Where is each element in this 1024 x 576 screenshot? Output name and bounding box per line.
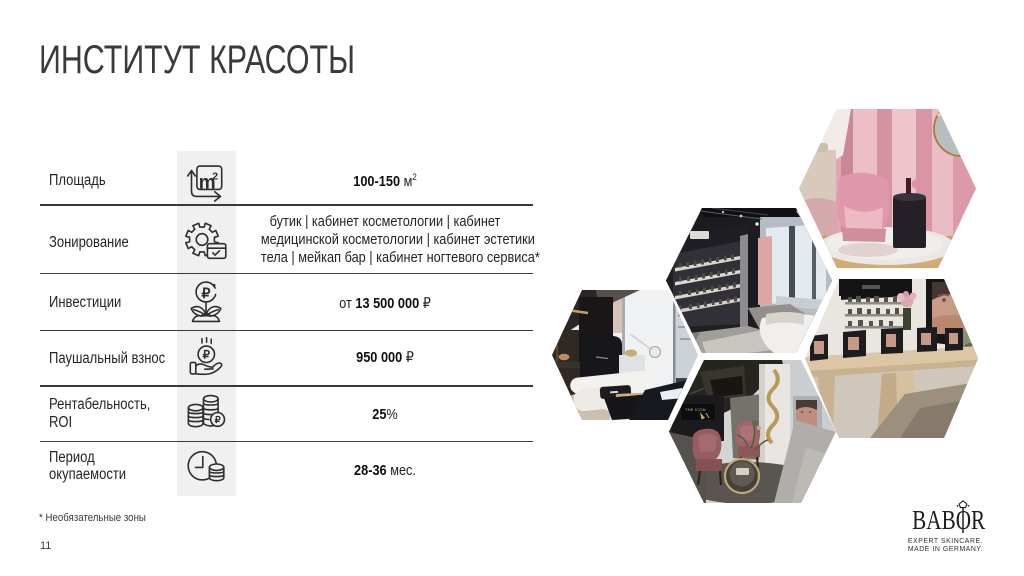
svg-text:THE ICON: THE ICON — [685, 407, 706, 412]
